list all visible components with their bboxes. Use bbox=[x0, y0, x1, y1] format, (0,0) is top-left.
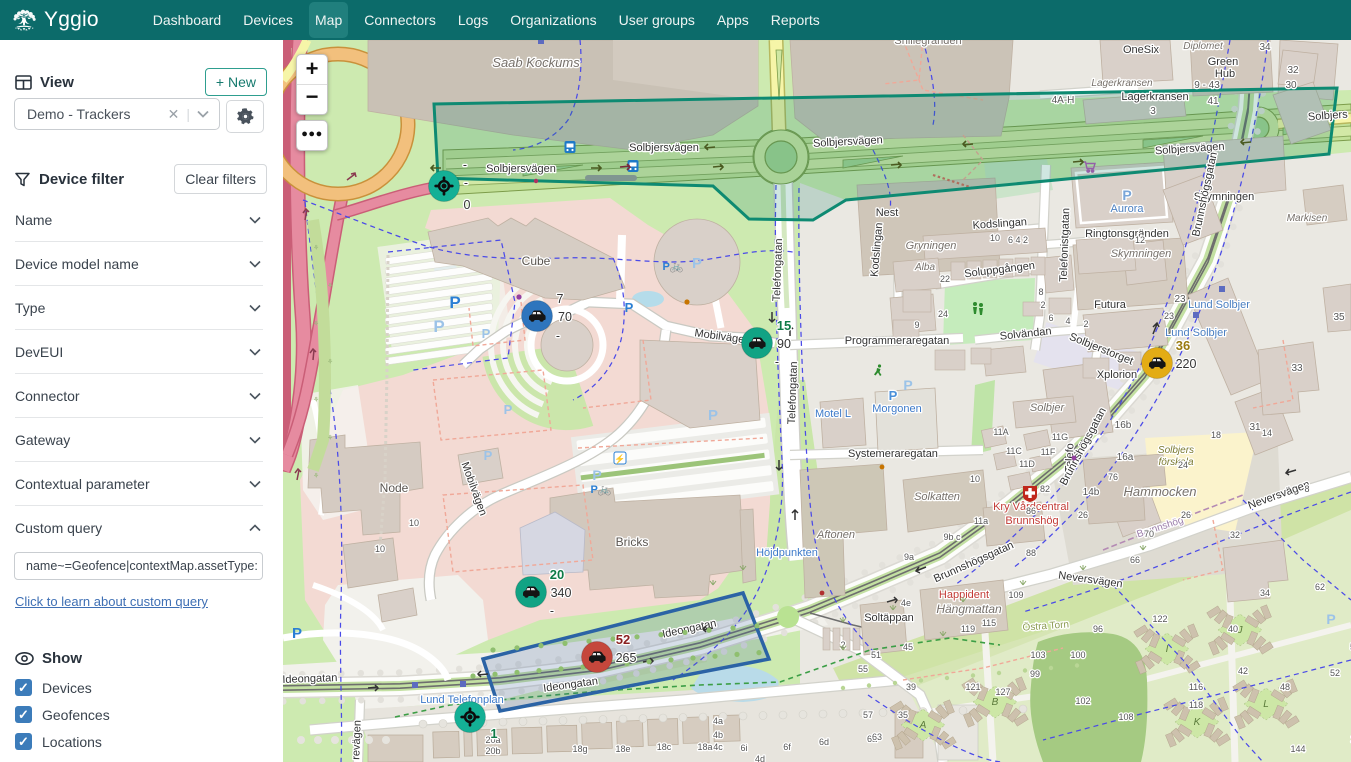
svg-text:52: 52 bbox=[616, 632, 630, 647]
svg-text:90: 90 bbox=[777, 337, 791, 351]
svg-text:82: 82 bbox=[1040, 484, 1050, 494]
svg-text:10: 10 bbox=[409, 518, 419, 528]
svg-text:109: 109 bbox=[1008, 590, 1023, 600]
svg-text:55: 55 bbox=[858, 664, 868, 674]
svg-text:Gryningen: Gryningen bbox=[906, 240, 957, 252]
svg-text:4e: 4e bbox=[901, 598, 911, 608]
svg-text:6d: 6d bbox=[819, 737, 829, 747]
svg-text:⚘: ⚘ bbox=[313, 320, 319, 328]
svg-text:7: 7 bbox=[557, 292, 564, 306]
svg-text:4b: 4b bbox=[713, 730, 723, 740]
svg-text:0: 0 bbox=[464, 198, 471, 212]
svg-text:⚘: ⚘ bbox=[327, 434, 333, 442]
svg-text:88: 88 bbox=[1026, 548, 1036, 558]
svg-text:P: P bbox=[292, 625, 302, 642]
svg-text:265: 265 bbox=[616, 651, 637, 665]
svg-text:20: 20 bbox=[550, 567, 564, 582]
svg-text:24: 24 bbox=[1178, 460, 1188, 470]
svg-text:I: I bbox=[1166, 644, 1169, 655]
svg-text:32: 32 bbox=[1287, 65, 1299, 76]
svg-text:4a: 4a bbox=[713, 716, 723, 726]
svg-text:Hängmattan: Hängmattan bbox=[936, 602, 1002, 616]
svg-text:Telefongatan: Telefongatan bbox=[771, 238, 785, 301]
svg-text:51: 51 bbox=[871, 650, 881, 660]
svg-text:220: 220 bbox=[1176, 357, 1197, 371]
svg-text:11G: 11G bbox=[1052, 432, 1068, 442]
svg-text:99: 99 bbox=[1030, 669, 1040, 679]
svg-text:P: P bbox=[504, 402, 513, 417]
svg-text:8: 8 bbox=[1038, 287, 1043, 297]
svg-text:⚡: ⚡ bbox=[614, 453, 625, 465]
svg-text:-: - bbox=[556, 329, 560, 343]
svg-text:18a: 18a bbox=[697, 742, 712, 752]
svg-text:102: 102 bbox=[1075, 696, 1090, 706]
svg-text:P: P bbox=[1326, 611, 1335, 627]
svg-text:P: P bbox=[482, 326, 491, 341]
svg-text:Programmeraregatan: Programmeraregatan bbox=[845, 335, 950, 347]
svg-text:103: 103 bbox=[1030, 650, 1045, 660]
svg-text:48: 48 bbox=[1280, 682, 1290, 692]
svg-text:Solbjer: Solbjer bbox=[1030, 402, 1066, 414]
svg-text:OneSix: OneSix bbox=[1123, 44, 1160, 56]
svg-text:Ideongatan: Ideongatan bbox=[283, 672, 338, 686]
svg-text:2: 2 bbox=[1083, 319, 1088, 329]
svg-text:Alba: Alba bbox=[914, 262, 935, 273]
svg-text:144: 144 bbox=[1290, 744, 1305, 754]
svg-text:förskola: förskola bbox=[1158, 457, 1193, 468]
svg-text:P: P bbox=[484, 448, 493, 463]
svg-text:108: 108 bbox=[1118, 712, 1133, 722]
svg-text:70: 70 bbox=[558, 310, 572, 324]
svg-text:11D: 11D bbox=[1019, 459, 1035, 469]
svg-text:9a: 9a bbox=[904, 552, 914, 562]
svg-text:Green: Green bbox=[1208, 56, 1239, 68]
svg-text:Systemeraregatan: Systemeraregatan bbox=[848, 448, 938, 460]
svg-text:-: - bbox=[463, 158, 467, 172]
svg-text:9: 9 bbox=[914, 320, 919, 330]
svg-text:57: 57 bbox=[863, 710, 873, 720]
svg-text:66: 66 bbox=[1130, 555, 1140, 565]
svg-text:Lund Solbjer: Lund Solbjer bbox=[1188, 299, 1250, 311]
svg-text:3: 3 bbox=[1150, 106, 1156, 117]
svg-text:23: 23 bbox=[1164, 311, 1174, 321]
svg-text:11A: 11A bbox=[993, 427, 1008, 437]
svg-text:Ringtonsgränden: Ringtonsgränden bbox=[1085, 228, 1169, 240]
svg-text:4c: 4c bbox=[713, 742, 723, 752]
svg-text:Markisen: Markisen bbox=[1287, 213, 1328, 224]
svg-text:10: 10 bbox=[990, 233, 1000, 243]
svg-text:70: 70 bbox=[1144, 529, 1154, 539]
svg-text:Xplorion: Xplorion bbox=[1097, 369, 1137, 381]
svg-text:116: 116 bbox=[1189, 682, 1203, 692]
svg-text:P: P bbox=[708, 407, 718, 424]
svg-text:Bricks: Bricks bbox=[616, 535, 649, 549]
svg-text:14: 14 bbox=[1262, 428, 1272, 438]
svg-text:18g: 18g bbox=[572, 744, 587, 754]
svg-text:34: 34 bbox=[1259, 42, 1271, 53]
svg-text:P: P bbox=[625, 300, 634, 315]
svg-text:Lagerkransen: Lagerkransen bbox=[1091, 78, 1153, 89]
svg-text:34: 34 bbox=[1260, 588, 1270, 598]
svg-text:P: P bbox=[592, 467, 601, 483]
svg-text:⚘: ⚘ bbox=[313, 244, 319, 252]
svg-text:9b c: 9b c bbox=[943, 532, 961, 542]
svg-text:⚘: ⚘ bbox=[327, 358, 333, 366]
svg-text:Diplomet: Diplomet bbox=[1183, 41, 1224, 52]
svg-text:Lagerkransen: Lagerkransen bbox=[1121, 91, 1188, 103]
svg-text:10: 10 bbox=[375, 544, 385, 554]
svg-text:Nest: Nest bbox=[876, 207, 899, 219]
svg-text:14b: 14b bbox=[1083, 487, 1100, 498]
svg-text:62: 62 bbox=[1315, 582, 1325, 592]
svg-text:119: 119 bbox=[961, 624, 975, 634]
svg-text:Saab Kockums: Saab Kockums bbox=[492, 55, 580, 70]
svg-text:39: 39 bbox=[906, 682, 916, 692]
svg-text:15: 15 bbox=[777, 318, 791, 333]
svg-text:4A-H: 4A-H bbox=[1052, 95, 1075, 106]
svg-text:P: P bbox=[1122, 187, 1131, 203]
svg-text:Morgonen: Morgonen bbox=[872, 403, 922, 415]
svg-text:16b: 16b bbox=[1115, 420, 1132, 431]
svg-text:76: 76 bbox=[1108, 472, 1118, 482]
svg-text:86: 86 bbox=[1026, 506, 1036, 516]
svg-text:340: 340 bbox=[551, 586, 572, 600]
svg-text:Cube: Cube bbox=[522, 254, 551, 268]
svg-text:11F: 11F bbox=[1041, 447, 1056, 457]
svg-text:52: 52 bbox=[1330, 668, 1340, 678]
svg-text:42: 42 bbox=[1238, 666, 1248, 676]
svg-text:22: 22 bbox=[940, 274, 950, 284]
svg-text:23: 23 bbox=[1174, 294, 1186, 305]
svg-text:4d: 4d bbox=[755, 754, 765, 762]
svg-text:⚘: ⚘ bbox=[327, 282, 333, 290]
svg-text:Aftonen: Aftonen bbox=[816, 529, 855, 541]
svg-text:Hub: Hub bbox=[1215, 68, 1235, 80]
svg-text:6 4 2: 6 4 2 bbox=[1008, 235, 1028, 245]
svg-text:P: P bbox=[889, 388, 898, 403]
svg-text:Hammocken: Hammocken bbox=[1124, 484, 1197, 499]
svg-text:L: L bbox=[1263, 699, 1269, 710]
svg-text:6: 6 bbox=[1048, 313, 1053, 323]
svg-text:Node: Node bbox=[380, 481, 409, 495]
svg-text:Höjdpunkten: Höjdpunkten bbox=[756, 547, 818, 559]
svg-text:118: 118 bbox=[1189, 700, 1203, 710]
svg-text:Soltäppan: Soltäppan bbox=[864, 612, 914, 624]
svg-text:Solbjers: Solbjers bbox=[1158, 445, 1194, 456]
svg-text:6i: 6i bbox=[740, 743, 747, 753]
svg-text:35: 35 bbox=[898, 710, 908, 720]
svg-text:P: P bbox=[449, 293, 460, 312]
svg-text:24: 24 bbox=[938, 309, 948, 319]
svg-text:P: P bbox=[903, 377, 912, 393]
svg-text:Solkatten: Solkatten bbox=[914, 491, 960, 503]
svg-text:6f: 6f bbox=[783, 742, 791, 752]
svg-text:31: 31 bbox=[1249, 422, 1261, 433]
svg-text:1: 1 bbox=[490, 726, 497, 741]
svg-text:P: P bbox=[433, 317, 444, 336]
svg-text:8: 8 bbox=[1304, 484, 1309, 494]
svg-text:Futura: Futura bbox=[1094, 299, 1127, 311]
svg-text:26: 26 bbox=[1078, 510, 1088, 520]
svg-text:40: 40 bbox=[1228, 624, 1238, 634]
svg-text:⚘: ⚘ bbox=[313, 472, 319, 480]
svg-text:11a: 11a bbox=[974, 516, 988, 526]
svg-text:45: 45 bbox=[903, 642, 913, 652]
svg-text:16a: 16a bbox=[1117, 452, 1134, 463]
svg-text:Skymningen: Skymningen bbox=[1111, 248, 1172, 260]
svg-text:Aurora: Aurora bbox=[1110, 203, 1144, 215]
svg-text:revägen: revägen bbox=[350, 720, 363, 760]
svg-text:30: 30 bbox=[1285, 80, 1297, 91]
svg-text:9 - 43: 9 - 43 bbox=[1194, 80, 1220, 91]
svg-text:2: 2 bbox=[1040, 300, 1045, 310]
svg-text:11C: 11C bbox=[1006, 446, 1022, 456]
svg-text:18: 18 bbox=[1211, 430, 1221, 440]
svg-text:36: 36 bbox=[1176, 338, 1190, 353]
svg-text:127: 127 bbox=[995, 687, 1010, 697]
svg-text:4: 4 bbox=[1065, 316, 1070, 326]
svg-text:63: 63 bbox=[872, 732, 882, 742]
svg-text:100: 100 bbox=[1070, 650, 1085, 660]
svg-text:121: 121 bbox=[965, 682, 980, 692]
svg-text:33: 33 bbox=[1291, 363, 1303, 374]
svg-text:Solbjersvägen: Solbjersvägen bbox=[486, 163, 556, 175]
svg-text:20b: 20b bbox=[485, 746, 500, 756]
svg-text:18e: 18e bbox=[615, 744, 630, 754]
svg-text:-: - bbox=[775, 355, 779, 369]
svg-text:115: 115 bbox=[982, 618, 996, 628]
svg-text:Telefongatan: Telefongatan bbox=[786, 361, 800, 424]
svg-text:P🚲: P🚲 bbox=[590, 484, 611, 496]
svg-text:P: P bbox=[692, 255, 702, 272]
svg-text:B: B bbox=[992, 697, 999, 708]
svg-text:35: 35 bbox=[1333, 312, 1345, 323]
svg-text:Shillegränden: Shillegränden bbox=[894, 40, 961, 47]
svg-text:-: - bbox=[464, 176, 468, 190]
svg-text:41: 41 bbox=[1207, 96, 1219, 107]
svg-text:-: - bbox=[550, 604, 554, 618]
svg-text:Motel L: Motel L bbox=[815, 408, 851, 420]
svg-text:18c: 18c bbox=[657, 742, 672, 752]
svg-text:P🚲: P🚲 bbox=[662, 261, 683, 273]
svg-text:12: 12 bbox=[1135, 235, 1145, 245]
svg-text:122: 122 bbox=[1152, 614, 1167, 624]
svg-text:96: 96 bbox=[1093, 624, 1103, 634]
svg-text:26: 26 bbox=[1181, 510, 1191, 520]
svg-text:Lund Solbjer: Lund Solbjer bbox=[1165, 327, 1227, 339]
svg-text:Happident: Happident bbox=[939, 589, 989, 601]
svg-text:⚘: ⚘ bbox=[313, 396, 319, 404]
svg-text:Brunnshög: Brunnshög bbox=[1005, 515, 1058, 527]
svg-text:10: 10 bbox=[970, 474, 980, 484]
svg-text:32: 32 bbox=[1230, 530, 1240, 540]
svg-text:Solbjersvägen: Solbjersvägen bbox=[629, 142, 699, 154]
